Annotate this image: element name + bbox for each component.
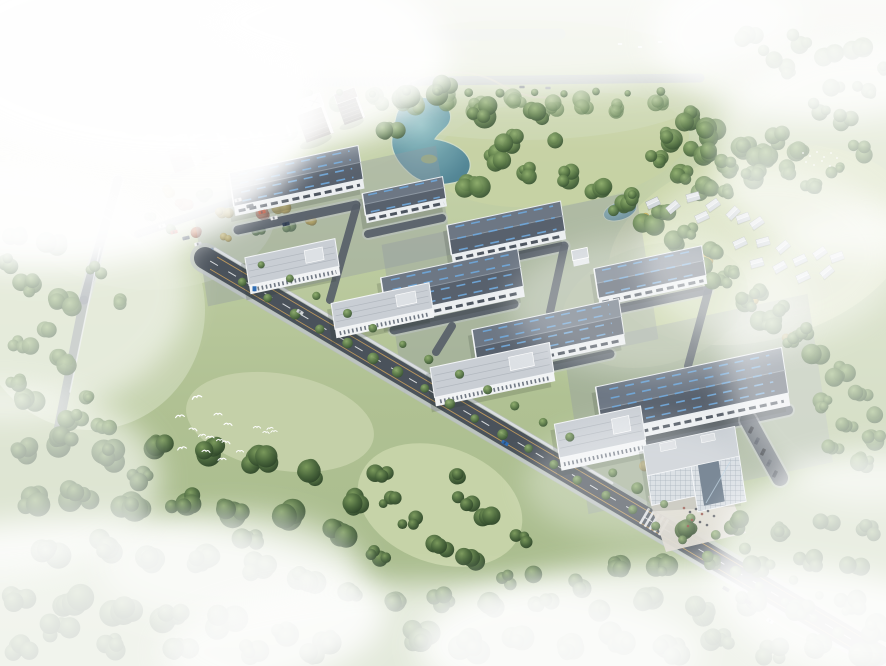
street-tree <box>455 370 464 379</box>
tree <box>452 469 464 481</box>
tree <box>366 549 377 560</box>
tree <box>608 205 619 216</box>
tree <box>455 548 472 565</box>
street-tree <box>263 294 272 303</box>
tree <box>680 173 691 184</box>
tree <box>389 492 402 505</box>
haze-veil-top <box>0 0 886 150</box>
tree <box>645 150 657 162</box>
street-tree <box>392 366 403 377</box>
tree <box>375 470 388 483</box>
tree <box>521 169 537 185</box>
entrance-sign <box>253 286 257 291</box>
street-tree <box>424 355 433 364</box>
tree <box>482 507 500 525</box>
street-tree <box>342 338 353 349</box>
tree <box>381 552 392 563</box>
street-tree <box>420 384 429 393</box>
street-tree <box>343 309 352 318</box>
street-tree <box>238 278 247 287</box>
street-tree <box>399 341 406 348</box>
tree <box>431 538 447 554</box>
fog-cloud <box>525 422 765 542</box>
tree <box>493 151 511 169</box>
street-tree <box>483 385 492 394</box>
tree <box>520 536 532 548</box>
street-tree <box>258 261 265 268</box>
industrial-park-rendering-svg <box>0 0 886 666</box>
tree <box>628 190 637 199</box>
tree <box>255 445 277 467</box>
tree <box>595 178 613 196</box>
street-tree <box>367 353 379 365</box>
street-tree <box>368 324 377 333</box>
tree <box>379 499 388 508</box>
tree <box>469 176 491 198</box>
tree <box>297 459 320 482</box>
street-tree <box>286 275 294 283</box>
aerial-site-rendering <box>0 0 886 666</box>
street-tree <box>510 401 519 410</box>
tree <box>176 498 191 513</box>
tree <box>343 493 363 513</box>
street-tree <box>312 292 320 300</box>
street-tree <box>539 418 548 427</box>
street-tree <box>315 324 324 333</box>
fog-cloud <box>510 235 810 375</box>
street-tree <box>470 414 479 423</box>
tree <box>156 434 174 452</box>
tree <box>557 175 569 187</box>
tree <box>408 519 419 530</box>
street-tree <box>497 429 508 440</box>
tree <box>460 498 473 511</box>
street-tree <box>445 399 455 409</box>
tree <box>502 570 513 581</box>
tree <box>398 519 408 529</box>
street-tree <box>524 444 533 453</box>
